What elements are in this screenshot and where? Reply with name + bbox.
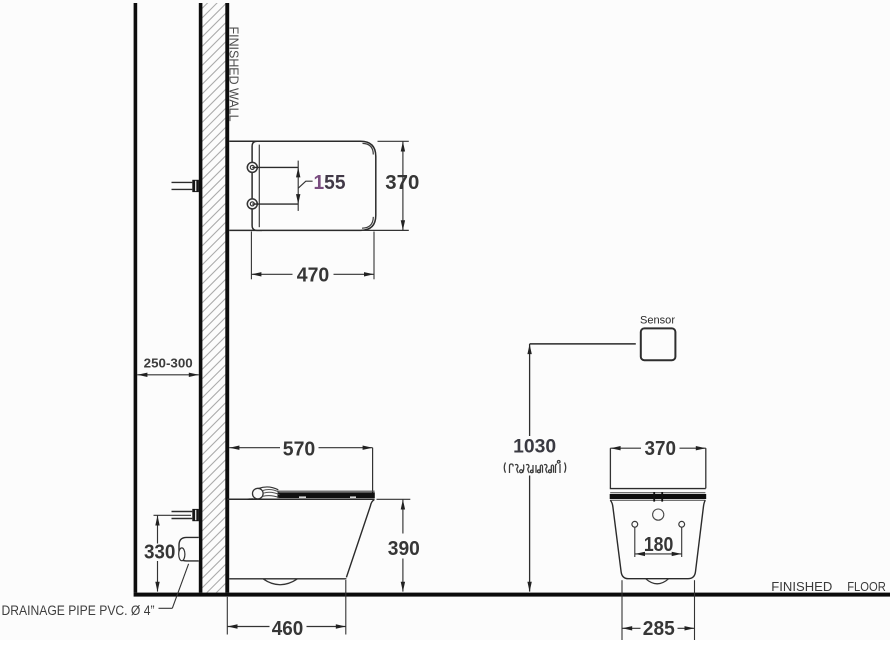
- svg-text:FLOOR: FLOOR: [847, 580, 886, 594]
- svg-text:1030: 1030: [513, 436, 556, 458]
- svg-text:390: 390: [388, 538, 420, 560]
- svg-text:Sensor: Sensor: [640, 315, 675, 327]
- svg-text:FINISHED: FINISHED: [771, 580, 832, 594]
- svg-text:250-300: 250-300: [144, 357, 193, 371]
- svg-text:470: 470: [297, 265, 330, 287]
- svg-text:370: 370: [645, 438, 677, 460]
- svg-text:155: 155: [314, 172, 346, 194]
- svg-text:285: 285: [643, 618, 675, 640]
- svg-text:370: 370: [385, 172, 419, 194]
- svg-text:330: 330: [144, 542, 176, 564]
- svg-text:570: 570: [283, 439, 316, 461]
- svg-text:DRAINAGE PIPE PVC. Ø 4”: DRAINAGE PIPE PVC. Ø 4”: [2, 603, 155, 618]
- svg-text:180: 180: [644, 534, 674, 556]
- svg-text:FINISHED WALL: FINISHED WALL: [227, 27, 242, 122]
- svg-text:460: 460: [272, 618, 304, 640]
